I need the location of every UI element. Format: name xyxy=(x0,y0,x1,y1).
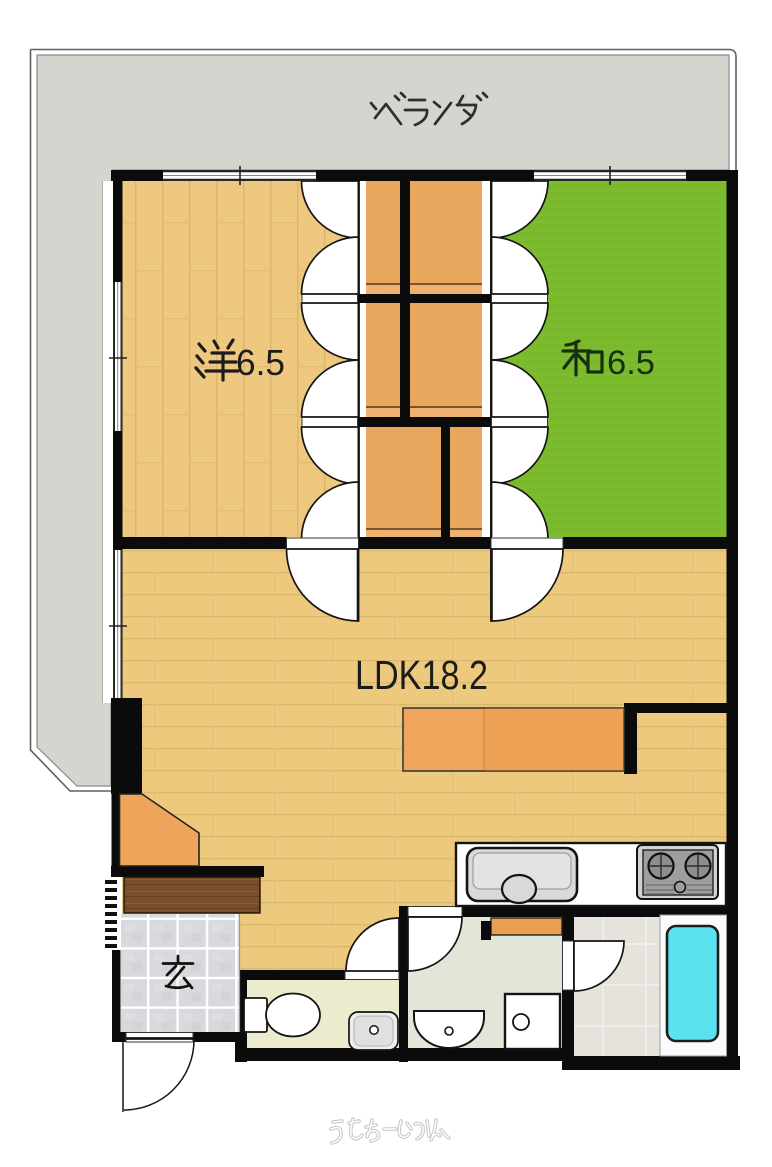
svg-text:6.5: 6.5 xyxy=(236,342,285,383)
svg-text:LDK18.2: LDK18.2 xyxy=(355,652,488,698)
svg-text:6.5: 6.5 xyxy=(607,344,655,382)
